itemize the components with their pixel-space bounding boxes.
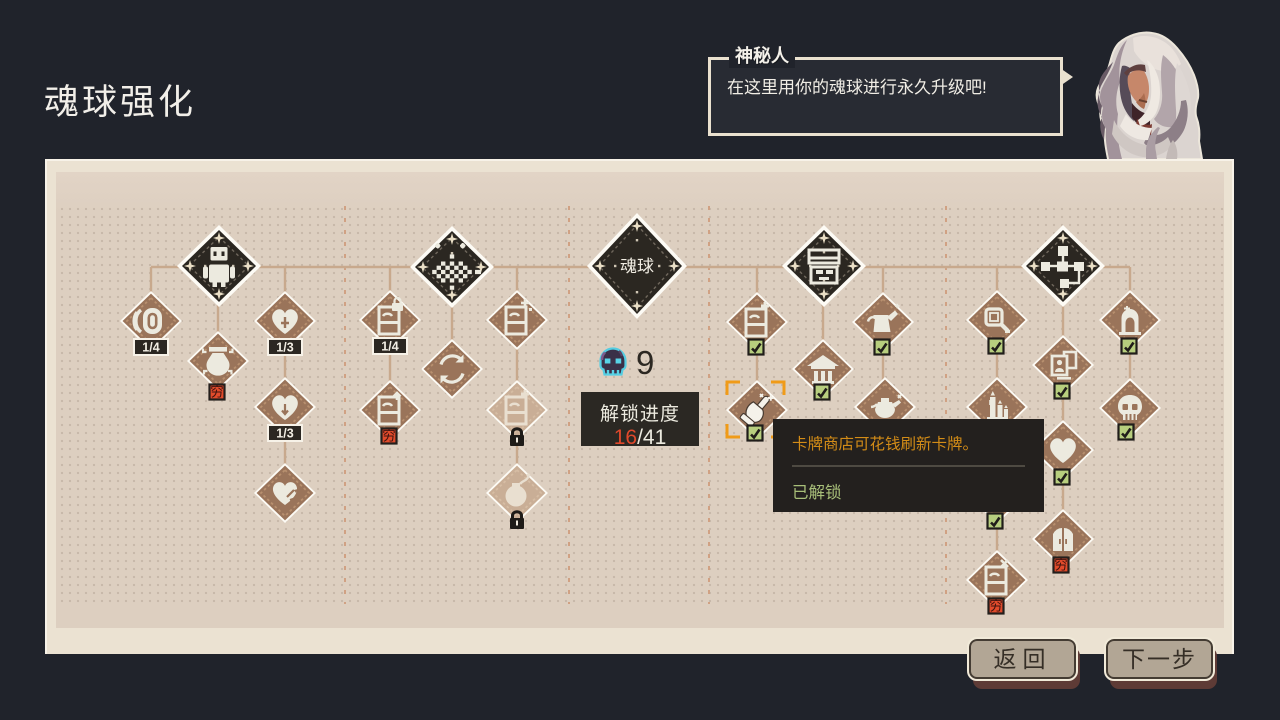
svg-text:穷: 穷 [989, 599, 1003, 614]
svg-text:1/4: 1/4 [381, 340, 398, 354]
svg-text:穷: 穷 [210, 385, 224, 400]
svg-text:1/3: 1/3 [276, 341, 293, 355]
svg-text:1/3: 1/3 [276, 427, 293, 441]
svg-text:1/4: 1/4 [142, 341, 159, 355]
svg-text:穷: 穷 [382, 429, 396, 444]
svg-text:9: 9 [636, 344, 654, 381]
svg-text:魂球: 魂球 [620, 257, 654, 276]
svg-text:穷: 穷 [1054, 558, 1068, 573]
